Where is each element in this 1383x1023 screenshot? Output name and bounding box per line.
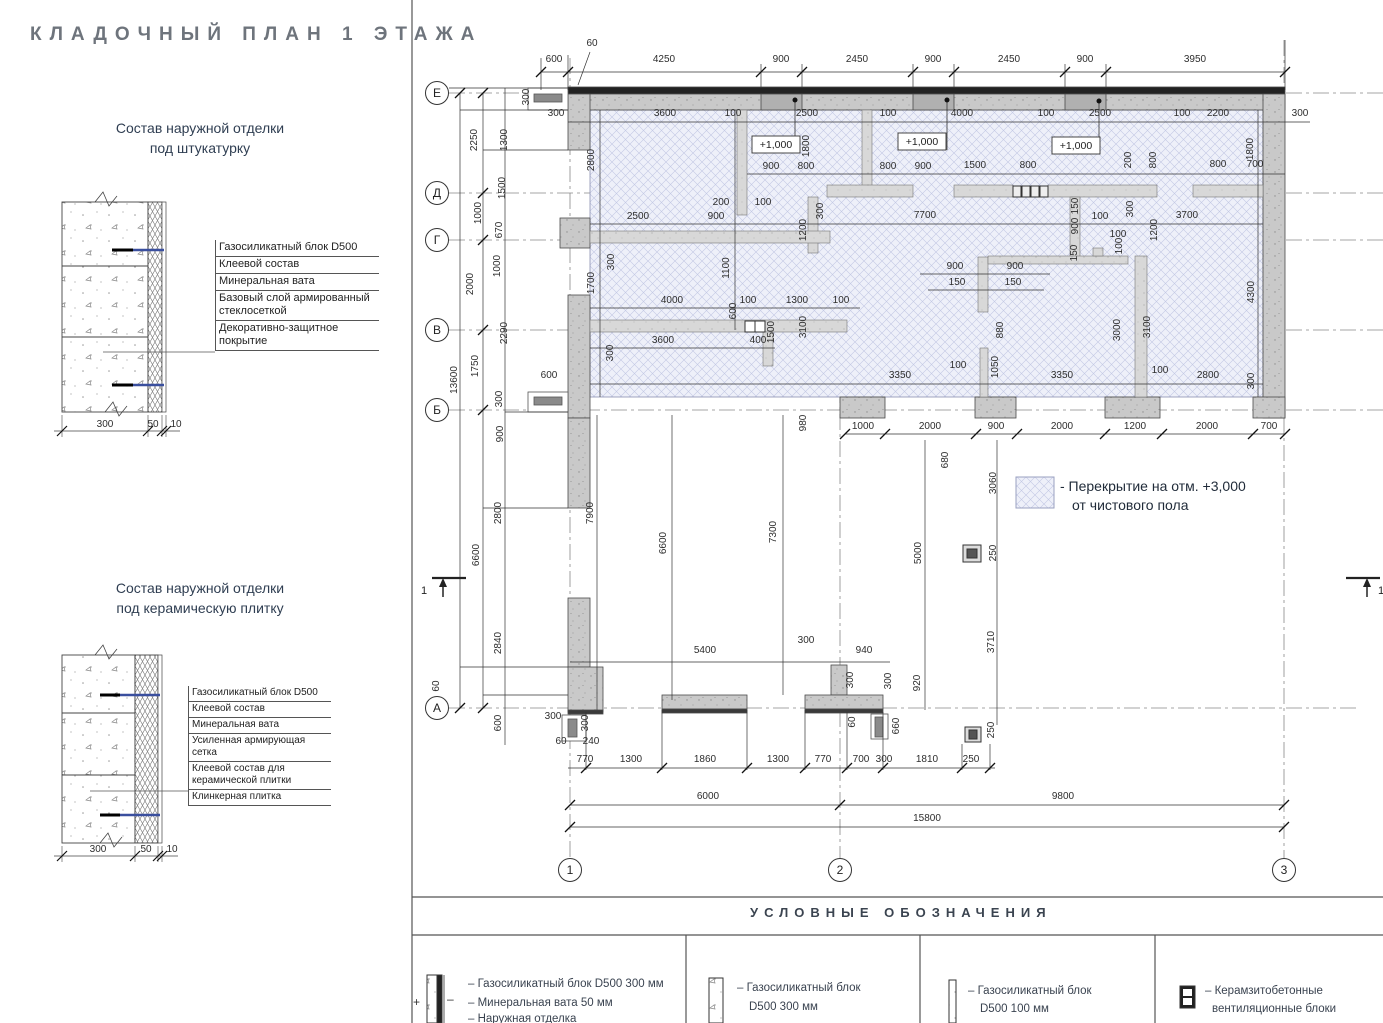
- page-title: КЛАДОЧНЫЙ ПЛАН 1 ЭТАЖА: [30, 24, 482, 46]
- dim-label: 2000: [465, 272, 476, 295]
- detail2-layer: Минеральная вата: [189, 718, 331, 734]
- dim-label: 300: [876, 754, 893, 765]
- dim-label: 250: [963, 754, 980, 765]
- dim-label: 300: [606, 253, 617, 270]
- detail2-dim-300: 300: [90, 844, 107, 855]
- slab-note-line1: - Перекрытие на отм. +3,000: [1060, 478, 1246, 494]
- dim-label: 300: [845, 671, 856, 688]
- dim-label: 600: [493, 714, 504, 731]
- dim-label: 800: [1210, 159, 1227, 170]
- dim-label: 900: [763, 161, 780, 172]
- dim-label: 660: [891, 717, 902, 734]
- section-markers: 1 1: [421, 578, 1383, 597]
- dim-label: 800: [1020, 160, 1037, 171]
- dim-label: 1800: [801, 134, 812, 157]
- dim-label: 2450: [846, 54, 869, 65]
- dim-label: 300: [521, 88, 532, 105]
- dim-label: 100: [833, 295, 850, 306]
- dim-label: 2500: [796, 108, 819, 119]
- slab-hatch-region: [590, 110, 1263, 397]
- dim-label: 900: [1070, 217, 1081, 234]
- dim-label: 1500: [964, 160, 987, 171]
- dim-label: 300: [1292, 108, 1309, 119]
- dim-label: 240: [583, 736, 600, 747]
- detail-tile-section: 300 50 10: [54, 645, 188, 862]
- legend-item1-line2: – Минеральная вата 50 мм: [468, 997, 613, 1009]
- legend-title: УСЛОВНЫЕ ОБОЗНАЧЕНИЯ: [750, 905, 1050, 920]
- detail1-layer: Минеральная вата: [216, 274, 379, 291]
- note-hatch-swatch: [1016, 477, 1054, 508]
- dim-label: 2800: [586, 148, 597, 171]
- dim-label: 700: [1261, 421, 1278, 432]
- dim-label: 980: [798, 414, 809, 431]
- dim-label: 920: [912, 674, 923, 691]
- dim-label: 1500: [766, 320, 777, 343]
- dim-label: 900: [1077, 54, 1094, 65]
- dim-label: 1000: [492, 254, 503, 277]
- detail1-layer: Газосиликатный блок D500: [216, 240, 379, 257]
- dim-label: 300: [883, 672, 894, 689]
- dim-label: 150: [1069, 244, 1080, 261]
- dim-label: 100: [1174, 108, 1191, 119]
- dim-label: 1200: [1149, 218, 1160, 241]
- detail2-title-line1: Состав наружной отделки: [70, 578, 330, 598]
- dim-label: 4250: [653, 54, 676, 65]
- dim-label: 2000: [919, 421, 942, 432]
- dim-label: 60: [431, 680, 442, 692]
- elevation-dot: [1097, 99, 1102, 104]
- dim-label: 100: [725, 108, 742, 119]
- dim-label: 1000: [852, 421, 875, 432]
- elevation-value: +1,000: [760, 139, 793, 151]
- detail1-layer-table: Газосиликатный блок D500 Клеевой состав …: [215, 240, 379, 351]
- dim-label: 2450: [998, 54, 1021, 65]
- section-label-left: 1: [421, 585, 427, 597]
- axis-bubble-label: Е: [433, 86, 441, 100]
- dim-label: 770: [577, 754, 594, 765]
- dim-label: 800: [798, 161, 815, 172]
- dim-label: 1300: [767, 754, 790, 765]
- legend-item1-line3: – Наружная отделка: [468, 1013, 576, 1023]
- dim-label: 3350: [889, 370, 912, 381]
- dim-label: 100: [950, 360, 967, 371]
- dim-label: 15800: [913, 813, 941, 824]
- detail1-dim-10: 10: [170, 419, 182, 430]
- dim-label: 800: [880, 161, 897, 172]
- dim-label: 300: [1125, 200, 1136, 217]
- dim-label: 2500: [627, 211, 650, 222]
- axis-bubble-label: 1: [567, 863, 574, 877]
- dim-label: 2200: [1207, 108, 1230, 119]
- dim-label: 1860: [694, 754, 717, 765]
- detail2-dim-50: 50: [140, 844, 152, 855]
- dim-label: 770: [815, 754, 832, 765]
- dim-label: 4300: [1246, 280, 1257, 303]
- dim-label: 6600: [471, 543, 482, 566]
- dim-label: 6000: [697, 791, 720, 802]
- dim-label: 670: [494, 221, 505, 238]
- dim-label: 2500: [1089, 108, 1112, 119]
- dim-label: 1300: [620, 754, 643, 765]
- elevation-dot: [945, 98, 950, 103]
- dim-label: 300: [494, 390, 505, 407]
- dim-label: 7700: [914, 210, 937, 221]
- dim-label: 3100: [1142, 315, 1153, 338]
- detail2-title-line2: под керамическую плитку: [70, 598, 330, 618]
- dim-label: 600: [728, 302, 739, 319]
- detail-plaster-section: 300 50 10: [54, 192, 215, 437]
- dim-label: 150: [1070, 197, 1081, 214]
- dim-label: 1100: [721, 257, 732, 279]
- legend-item4-line2: вентиляционные блоки: [1212, 1003, 1336, 1015]
- dim-label: 900: [988, 421, 1005, 432]
- legend-item2-line2: D500 300 мм: [749, 1001, 818, 1013]
- axis-bubble-label: 2: [837, 863, 844, 877]
- dim-label: 900: [947, 261, 964, 272]
- dim-label: 60: [847, 716, 858, 728]
- dim-label: 5000: [913, 541, 924, 564]
- dim-label: 1800: [1245, 137, 1256, 160]
- dim-label: 1200: [1124, 421, 1147, 432]
- detail1-dim-300: 300: [97, 419, 114, 430]
- dim-label: 13600: [449, 366, 460, 394]
- dim-label: 300: [815, 202, 826, 219]
- dim-label: 880: [995, 321, 1006, 338]
- dim-label: 250: [988, 544, 999, 561]
- dim-label: 250: [986, 721, 997, 738]
- legend-item1-line1: – Газосиликатный блок D500 300 мм: [468, 978, 664, 990]
- detail2-layer-table: Газосиликатный блок D500 Клеевой состав …: [188, 686, 331, 806]
- dim-label: 1200: [798, 218, 809, 241]
- dim-label: 1050: [990, 355, 1001, 378]
- dim-label: 2250: [469, 128, 480, 151]
- legend-minus-mark: –: [447, 992, 454, 1006]
- detail2-layer: Усиленная армирующая сетка: [189, 734, 331, 762]
- dim-label: 300: [798, 635, 815, 646]
- dim-label: 100: [1110, 229, 1127, 240]
- dim-label: 1000: [473, 201, 484, 224]
- dim-label: 7300: [768, 520, 779, 543]
- detail1-dim-50: 50: [147, 419, 159, 430]
- elevation-dot: [793, 98, 798, 103]
- dim-label: 3060: [988, 471, 999, 494]
- dim-label: 4000: [661, 295, 684, 306]
- dim-label: 900: [915, 161, 932, 172]
- dim-label: 300: [545, 711, 562, 722]
- dim-label: 200: [713, 197, 730, 208]
- dim-label: 100: [1038, 108, 1055, 119]
- detail1-title-line2: под штукатурку: [70, 138, 330, 158]
- dim-label: 680: [940, 451, 951, 468]
- legend-item2-line1: – Газосиликатный блок: [737, 982, 861, 994]
- detail2-title: Состав наружной отделки под керамическую…: [70, 578, 330, 618]
- detail2-layer: Клинкерная плитка: [189, 790, 331, 806]
- dim-label: 1700: [586, 271, 597, 294]
- dim-label: 6600: [658, 531, 669, 554]
- detail1-layer: Клеевой состав: [216, 257, 379, 274]
- dim-label: 900: [925, 54, 942, 65]
- dim-label: 100: [880, 108, 897, 119]
- detail2-layer: Клеевой состав для керамической плитки: [189, 762, 331, 790]
- dim-label: 150: [1005, 277, 1022, 288]
- legend-item4-line1: – Керамзитобетонные: [1205, 985, 1323, 997]
- dim-label: 60: [555, 736, 567, 747]
- dim-label: 2840: [493, 631, 504, 654]
- dim-label: 3100: [798, 315, 809, 338]
- dim-label: 600: [541, 370, 558, 381]
- dim-label: 3950: [1184, 54, 1207, 65]
- section-label-right: 1: [1378, 585, 1383, 597]
- dim-label: 9800: [1052, 791, 1075, 802]
- dim-label: 3600: [652, 335, 675, 346]
- dim-label: 3700: [1176, 210, 1199, 221]
- dim-label: 100: [1152, 365, 1169, 376]
- dim-label: 200: [1123, 151, 1134, 168]
- dim-label: 700: [1247, 159, 1264, 170]
- detail1-layer: Декоративно-защитное покрытие: [216, 321, 379, 351]
- dim-label: 100: [1092, 211, 1109, 222]
- dim-label: 150: [949, 277, 966, 288]
- dim-label: 3600: [654, 108, 677, 119]
- dim-label: 3000: [1112, 318, 1123, 341]
- detail1-layer: Базовый слой армированный стеклосеткой: [216, 291, 379, 321]
- legend-item3-line1: – Газосиликатный блок: [968, 985, 1092, 997]
- dim-label: 1500: [497, 176, 508, 199]
- dim-label: 940: [856, 645, 873, 656]
- dim-label: 300: [605, 344, 616, 361]
- dim-label: 1810: [916, 754, 939, 765]
- elevation-value: +1,000: [906, 136, 939, 148]
- axis-bubble-label: 3: [1281, 863, 1288, 877]
- dim-label: 3710: [986, 630, 997, 653]
- legend-plus-mark: +: [413, 995, 420, 1009]
- detail2-layer: Клеевой состав: [189, 702, 331, 718]
- axis-bubble-label: Г: [434, 233, 441, 247]
- dim-label: 5400: [694, 645, 717, 656]
- dim-label: 700: [853, 754, 870, 765]
- dim-label: 900: [773, 54, 790, 65]
- dim-label: 300: [580, 714, 591, 731]
- dim-label: 4000: [951, 108, 974, 119]
- axis-bubble-label: А: [433, 701, 441, 715]
- drawing-sheet: 1 1 300 50 10: [0, 0, 1383, 1023]
- axis-bubble-label: Д: [433, 186, 441, 200]
- dim-label: 2000: [1196, 421, 1219, 432]
- slab-note-line2: от чистового пола: [1072, 497, 1189, 513]
- dim-label: 3350: [1051, 370, 1074, 381]
- dim-label: 2000: [1051, 421, 1074, 432]
- dim-label: 100: [740, 295, 757, 306]
- dim-label: 100: [755, 197, 772, 208]
- dim-label: 400: [750, 335, 767, 346]
- dim-label: 2290: [499, 321, 510, 344]
- dim-label: 900: [495, 425, 506, 442]
- elevation-value: +1,000: [1060, 140, 1093, 152]
- detail2-dim-10: 10: [166, 844, 178, 855]
- dim-label: 900: [708, 211, 725, 222]
- legend-item3-line2: D500 100 мм: [980, 1003, 1049, 1015]
- detail2-layer: Газосиликатный блок D500: [189, 686, 331, 702]
- dim-label: 800: [1148, 151, 1159, 168]
- dim-label: 600: [546, 54, 563, 65]
- dim-label: 7900: [585, 501, 596, 524]
- dim-label: 2800: [1197, 370, 1220, 381]
- dim-label: 300: [1246, 372, 1257, 389]
- dim-label: 1750: [470, 354, 481, 377]
- axis-bubble-label: В: [433, 323, 441, 337]
- dim-label: 1300: [786, 295, 809, 306]
- axis-bubble-label: Б: [433, 403, 441, 417]
- dim-label: 900: [1007, 261, 1024, 272]
- detail1-title-line1: Состав наружной отделки: [70, 118, 330, 138]
- dim-label: 2800: [493, 501, 504, 524]
- dim-label: 60: [586, 38, 598, 49]
- dim-label: 1300: [499, 128, 510, 151]
- detail1-title: Состав наружной отделки под штукатурку: [70, 118, 330, 158]
- dim-label: 300: [548, 108, 565, 119]
